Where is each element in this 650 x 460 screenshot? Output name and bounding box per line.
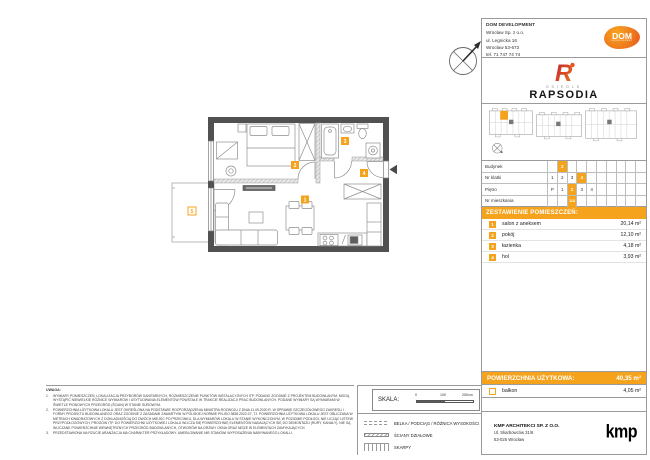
- legend-label: SKARPY: [394, 445, 411, 450]
- notes-items: 1.WYMIARY POMIESZCZEŃ, LOKALIZACJA PRZYB…: [46, 394, 354, 436]
- developer-info: DOM DEVELOPMENT Wrocław Sp. z o.o. ul. L…: [482, 19, 646, 58]
- unit-info-cell: [607, 161, 617, 172]
- unit-info-cell: [607, 184, 617, 195]
- unit-info-cell: 3: [577, 184, 587, 195]
- site-plan-compass-icon: [492, 143, 502, 153]
- unit-info-cell: [587, 196, 597, 208]
- chair: [289, 228, 299, 235]
- estate-name: RAPSODIA: [529, 89, 598, 101]
- furniture: [216, 124, 382, 247]
- unit-info-cell: [636, 173, 646, 184]
- unit-info-cell: 1: [548, 173, 558, 184]
- spacer: [482, 398, 646, 412]
- scale-label: SKALA:: [378, 397, 399, 403]
- unit-info-cell: [617, 184, 627, 195]
- nightstand: [238, 124, 246, 132]
- unit-info-row-label: Budynek: [482, 161, 548, 172]
- svg-text:2: 2: [294, 163, 297, 169]
- unit-info-cell: [548, 161, 558, 172]
- notes-title: UWAGA:: [46, 388, 354, 393]
- room-number-badge: 3: [489, 243, 496, 250]
- usable-area-label: POWIERZCHNIA UŻYTKOWA:: [487, 375, 574, 382]
- usable-area-value: 40,35 m²: [616, 375, 641, 382]
- legend-row: BELKA / PODCIĄG / RÓŻNICA WYSOKOŚCI: [358, 417, 481, 429]
- svg-text:3: 3: [344, 139, 347, 145]
- unit-info-cell: [617, 161, 627, 172]
- legend-label: BELKA / PODCIĄG / RÓŻNICA WYSOKOŚCI: [394, 421, 479, 426]
- unit-info-row: PiętroP1234: [482, 184, 646, 196]
- unit-info-cell: [587, 173, 597, 184]
- unit-info-cell: [626, 173, 636, 184]
- room-number-badge: 4: [489, 254, 496, 261]
- unit-info-cell: 4: [577, 173, 587, 184]
- scale-bar: 0 100 200cm: [415, 393, 477, 408]
- scale-box: SKALA: 0 100 200cm: [372, 389, 480, 411]
- svg-text:R: R: [555, 60, 573, 84]
- note-item: 3.PRZEDSTAWIONA NA RZUCIE ARANŻACJA MA C…: [46, 431, 354, 435]
- balcony-area: 4,05 m²: [623, 388, 641, 394]
- pillow: [250, 127, 267, 136]
- room-name: salon z aneksem: [502, 221, 621, 227]
- legend-row: SKARPY: [358, 441, 481, 453]
- note-item: 2.POWIERZCHNIA UŻYTKOWA LOKALU JEST OKRE…: [46, 408, 354, 430]
- unit-info-cell: [626, 196, 636, 208]
- site-plan-unit-highlight: [500, 111, 508, 120]
- rooms-schedule: ZESTAWIENIE POMIESZCZEŃ: 1salon z anekse…: [482, 207, 646, 372]
- unit-info-row-label: Piętro: [482, 184, 548, 195]
- hatch-legend-icon: [364, 433, 389, 437]
- room-name: hol: [502, 254, 623, 260]
- room-row: 4hol3,93 m²: [482, 252, 646, 263]
- room-row: 3łazienka4,18 m²: [482, 241, 646, 252]
- notes-block: UWAGA: 1.WYMIARY POMIESZCZEŃ, LOKALIZACJ…: [46, 385, 354, 436]
- site-plan: [482, 104, 646, 159]
- sofa: [216, 230, 278, 245]
- unit-info-row: Nr klatki1234: [482, 173, 646, 185]
- balcony-row: balkon 4,05 m²: [482, 385, 646, 398]
- unit-info-cell: [626, 184, 636, 195]
- unit-info-cell: [636, 184, 646, 195]
- room-name: pokój: [502, 232, 621, 238]
- unit-info-cell: [587, 161, 597, 172]
- site-plan-block: [482, 104, 646, 161]
- scale-and-legend: SKALA: 0 100 200cm BELKA / PODCIĄG / RÓŻ…: [357, 385, 481, 455]
- room-area: 3,93 m²: [623, 254, 641, 260]
- room-row: 2pokój12,10 m²: [482, 230, 646, 241]
- room-name: łazienka: [502, 243, 623, 249]
- unit-info-cell: [577, 196, 587, 208]
- note-item: 1.WYMIARY POMIESZCZEŃ, LOKALIZACJA PRZYB…: [46, 394, 354, 407]
- unit-info-cell: [558, 196, 568, 208]
- developer-line: tel. 71 747 74 74: [486, 51, 642, 58]
- dining-table: [286, 206, 314, 230]
- room-area: 12,10 m²: [621, 232, 641, 238]
- room-area: 4,18 m²: [623, 243, 641, 249]
- unit-info-row: Budynek2: [482, 161, 646, 173]
- architect-block: KMP ARCHITEKCI SP. Z O.O. Ul. Skarbowców…: [482, 412, 646, 454]
- unit-info-row-label: Nr mieszkania: [482, 196, 548, 208]
- legend-row: ŚCIANY DZIAŁOWE: [358, 429, 481, 441]
- unit-info-cell: 2: [568, 184, 578, 195]
- unit-info-cell: [577, 161, 587, 172]
- unit-info-cell: 1: [558, 184, 568, 195]
- hob: [320, 235, 338, 246]
- balcony-marker-icon: [489, 388, 496, 395]
- legend: BELKA / PODCIĄG / RÓŻNICA WYSOKOŚCIŚCIAN…: [358, 414, 481, 453]
- unit-info-cell: 118: [568, 196, 578, 208]
- entrance-arrow-icon: [390, 165, 398, 174]
- unit-info-cell: [607, 173, 617, 184]
- tall-cabinet: [367, 203, 381, 246]
- coffee-table: [249, 212, 263, 223]
- usable-area-bar: POWIERZCHNIA UŻYTKOWA: 40,35 m²: [482, 372, 646, 385]
- unit-info-cell: [597, 196, 607, 208]
- svg-text:1: 1: [304, 198, 307, 204]
- unit-info-table: Budynek2Nr klatki1234PiętroP1234Nr miesz…: [482, 161, 646, 207]
- pillow: [272, 127, 289, 136]
- unit-info-cell: P: [548, 184, 558, 195]
- architect-name: KMP ARCHITEKCI SP. Z O.O.: [494, 423, 559, 430]
- unit-info-cell: [597, 173, 607, 184]
- unit-info-cell: [636, 196, 646, 208]
- unit-info-cell: [636, 161, 646, 172]
- unit-info-cell: [607, 196, 617, 208]
- balcony-name: balkon: [502, 388, 623, 394]
- rooms-list: 1salon z aneksem20,14 m²2pokój12,10 m²3ł…: [482, 219, 646, 263]
- unit-info-cell: [597, 161, 607, 172]
- rooms-schedule-header: ZESTAWIENIE POMIESZCZEŃ:: [482, 207, 646, 219]
- unit-info-cell: [568, 161, 578, 172]
- architect-city: 53-025 Wrocław: [494, 437, 559, 443]
- scale-cell: SKALA: 0 100 200cm: [358, 386, 481, 414]
- svg-text:4: 4: [363, 171, 366, 177]
- kmp-logo: kmp: [606, 423, 637, 444]
- room-number-badge: 2: [489, 232, 496, 239]
- room-row: 1salon z aneksem20,14 m²: [482, 219, 646, 230]
- beam-legend-icon: [364, 421, 389, 426]
- unit-info-cell: [617, 173, 627, 184]
- rapsodia-r-logo-icon: R: [548, 60, 580, 84]
- floor-plan-sheet: 1 2 3 4 5 N DOM DEVELOPMENT Wrocław Sp. …: [0, 0, 650, 460]
- unit-info-cell: 3: [568, 173, 578, 184]
- room-area: 20,14 m²: [621, 221, 641, 227]
- estate-logo-block: R OSIEDLE RAPSODIA: [482, 58, 646, 104]
- legend-label: ŚCIANY DZIAŁOWE: [394, 433, 433, 438]
- title-block-panel: DOM DEVELOPMENT Wrocław Sp. z o.o. ul. L…: [481, 18, 647, 455]
- unit-info-cell: [548, 196, 558, 208]
- chair: [302, 228, 312, 235]
- unit-info-cell: [626, 161, 636, 172]
- chair: [289, 202, 299, 209]
- unit-info-row-label: Nr klatki: [482, 173, 548, 184]
- unit-info-cell: 2: [558, 173, 568, 184]
- unit-info-cell: [617, 196, 627, 208]
- unit-info-cell: [597, 184, 607, 195]
- unit-info-cell: 4: [587, 184, 597, 195]
- toilet: [357, 124, 368, 129]
- svg-text:5: 5: [191, 209, 194, 215]
- ticks-legend-icon: [364, 443, 389, 451]
- unit-info-row: Nr mieszkania118: [482, 196, 646, 208]
- unit-info-cell: 2: [558, 161, 568, 172]
- room-number-badge: 1: [489, 221, 496, 228]
